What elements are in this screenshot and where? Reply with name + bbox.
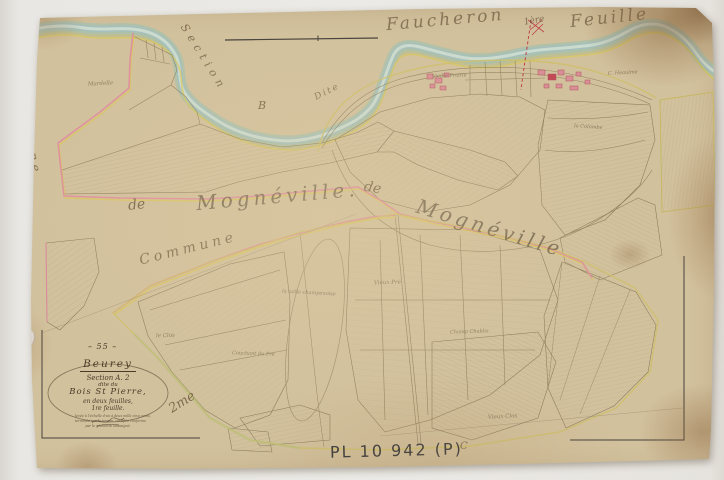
parcel-label: Vieux Pré bbox=[374, 281, 401, 287]
cartouche-commune-title: Beurey bbox=[80, 358, 136, 372]
map-sheet-wrapper: Faucheron 1ère Feuille Section Dite B C … bbox=[0, 0, 724, 480]
parcel-label: le Clos bbox=[156, 334, 175, 340]
cartouche-section-line: Section A. 2 bbox=[48, 374, 168, 382]
scanned-map-background: Faucheron 1ère Feuille Section Dite B C … bbox=[0, 0, 724, 480]
cartouche-sheet-number: – 55 – bbox=[88, 342, 117, 351]
cartouche-fine-print-line: terminée sur le terrain, certifiée confo… bbox=[75, 420, 141, 424]
cartouche-fine-print: levée à l'échelle d'un à deux mille cinq… bbox=[48, 415, 168, 432]
archive-reference-stamp: PL 10 942 (P) bbox=[330, 439, 463, 461]
cartouche-sheet-line: 1re feuille. bbox=[48, 406, 168, 413]
map-sheet-paper: Faucheron 1ère Feuille Section Dite B C … bbox=[0, 0, 724, 480]
de-inscription-2: de bbox=[363, 180, 382, 197]
de-inscription-1: de bbox=[127, 197, 146, 213]
cartouche-name-line: Bois St Pierre, bbox=[48, 388, 168, 398]
section-letter-b: B bbox=[258, 100, 266, 111]
cartouche-fine-print-line: par le géomètre soussigné. bbox=[75, 425, 141, 429]
cartouche-fine-print-line: levée à l'échelle d'un à deux mille cinq… bbox=[75, 415, 141, 419]
cartouche: Beurey Section A. 2 dite du Bois St Pier… bbox=[48, 353, 168, 430]
